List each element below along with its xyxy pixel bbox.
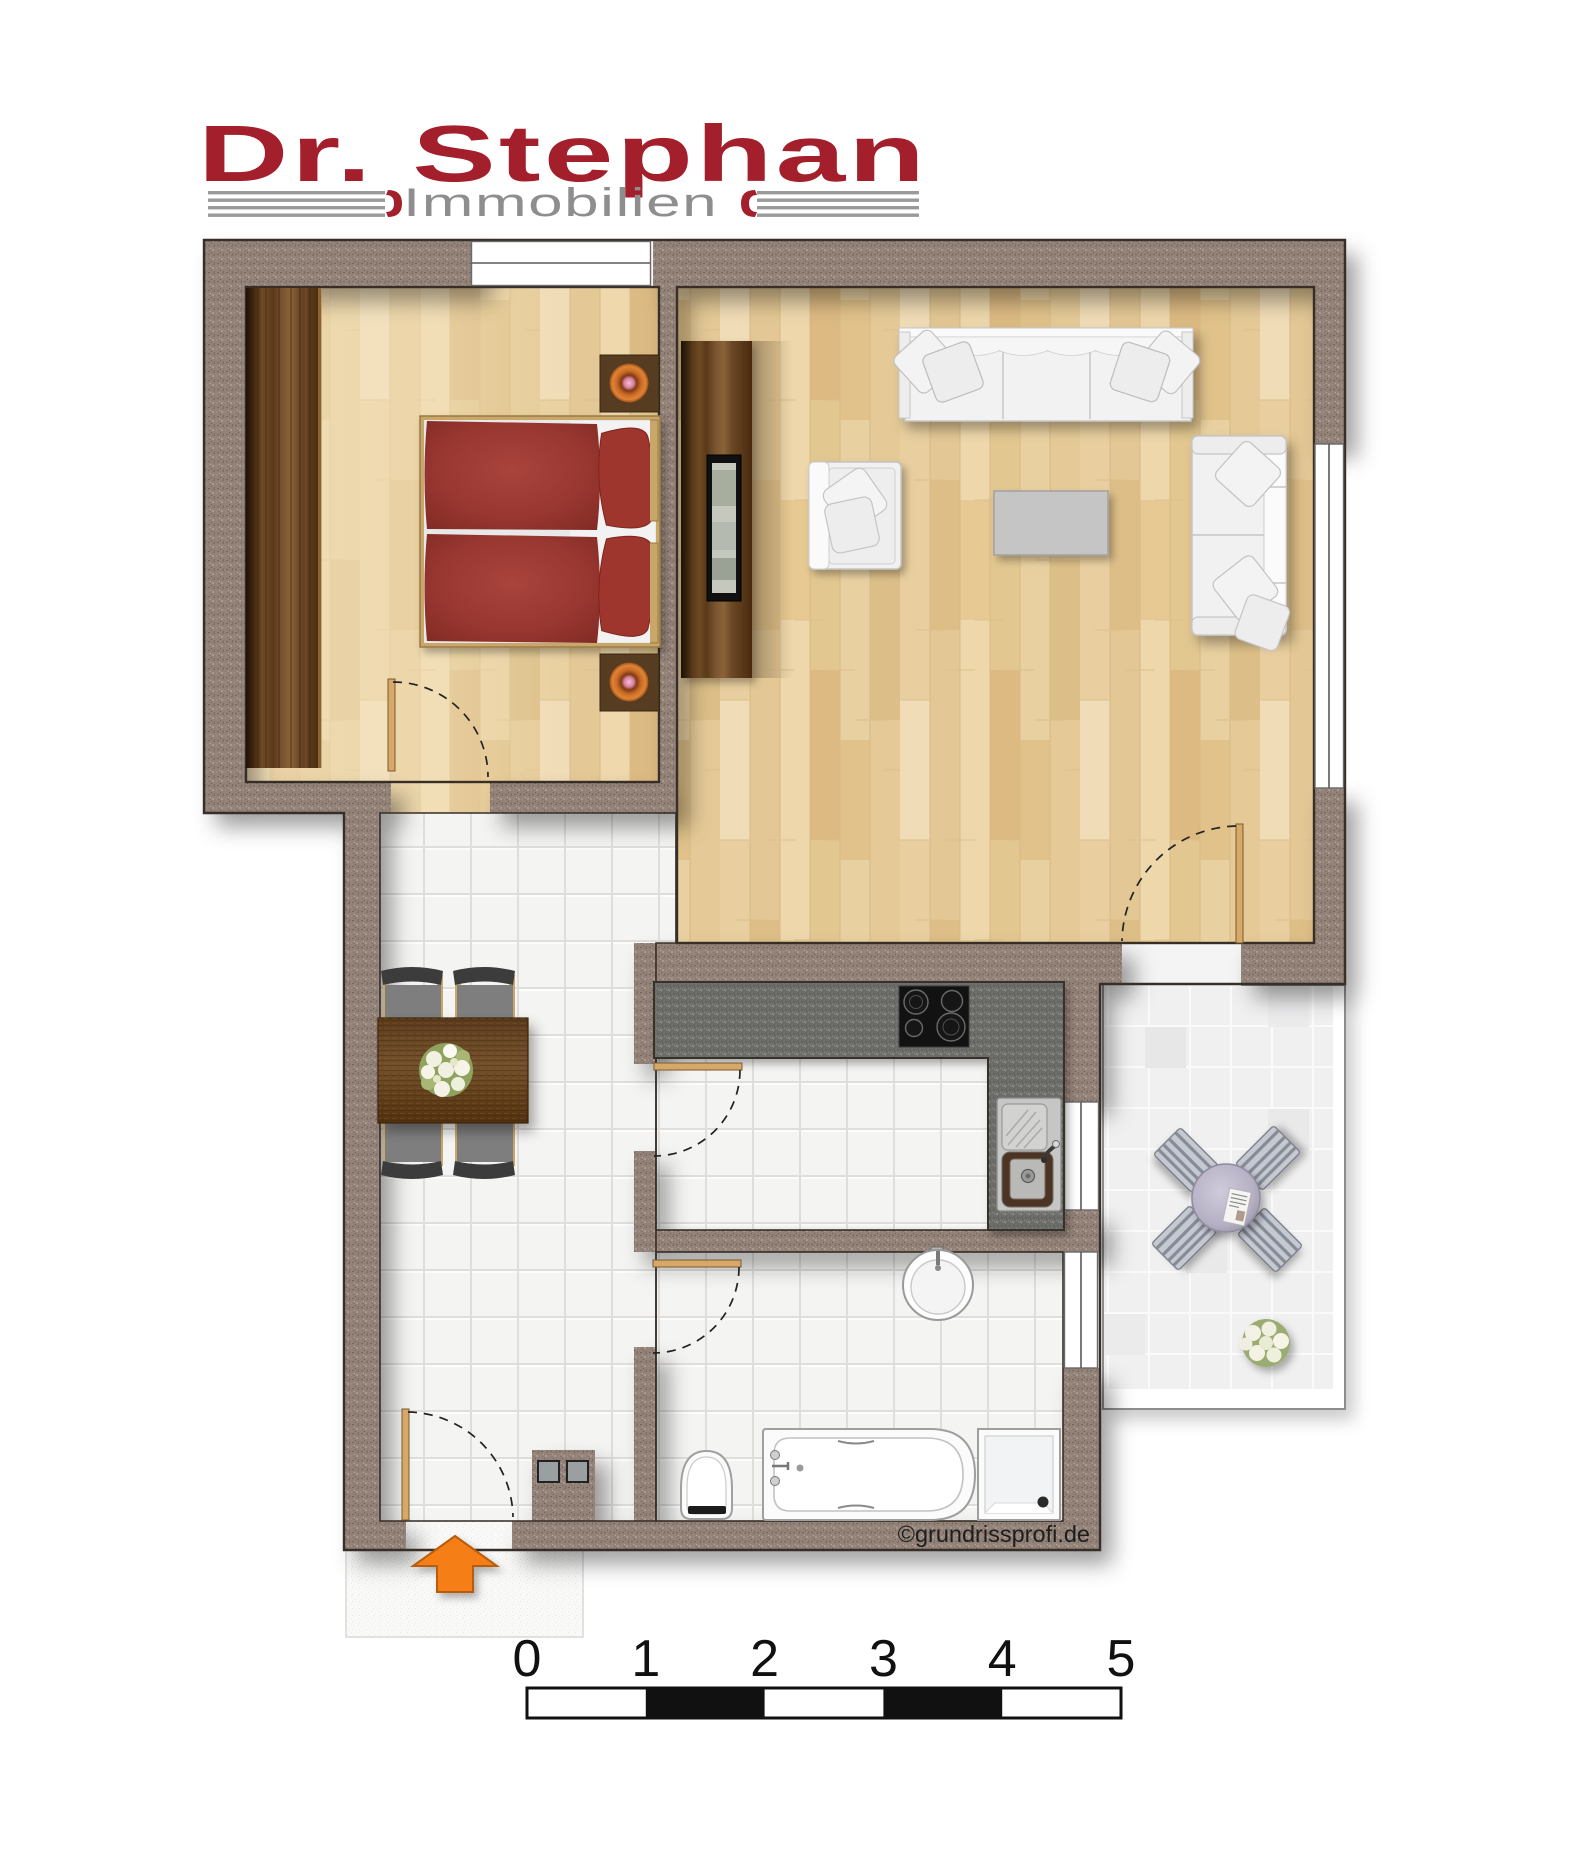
svg-text:3: 3	[869, 1630, 898, 1688]
svg-text:0: 0	[513, 1630, 542, 1688]
svg-text:2: 2	[750, 1630, 779, 1688]
svg-text:©grundrissprofi.de: ©grundrissprofi.de	[898, 1521, 1090, 1547]
svg-text:Immobilien: Immobilien	[403, 181, 718, 225]
svg-text:4: 4	[988, 1630, 1017, 1688]
svg-text:1: 1	[631, 1630, 660, 1688]
svg-text:5: 5	[1107, 1630, 1136, 1688]
